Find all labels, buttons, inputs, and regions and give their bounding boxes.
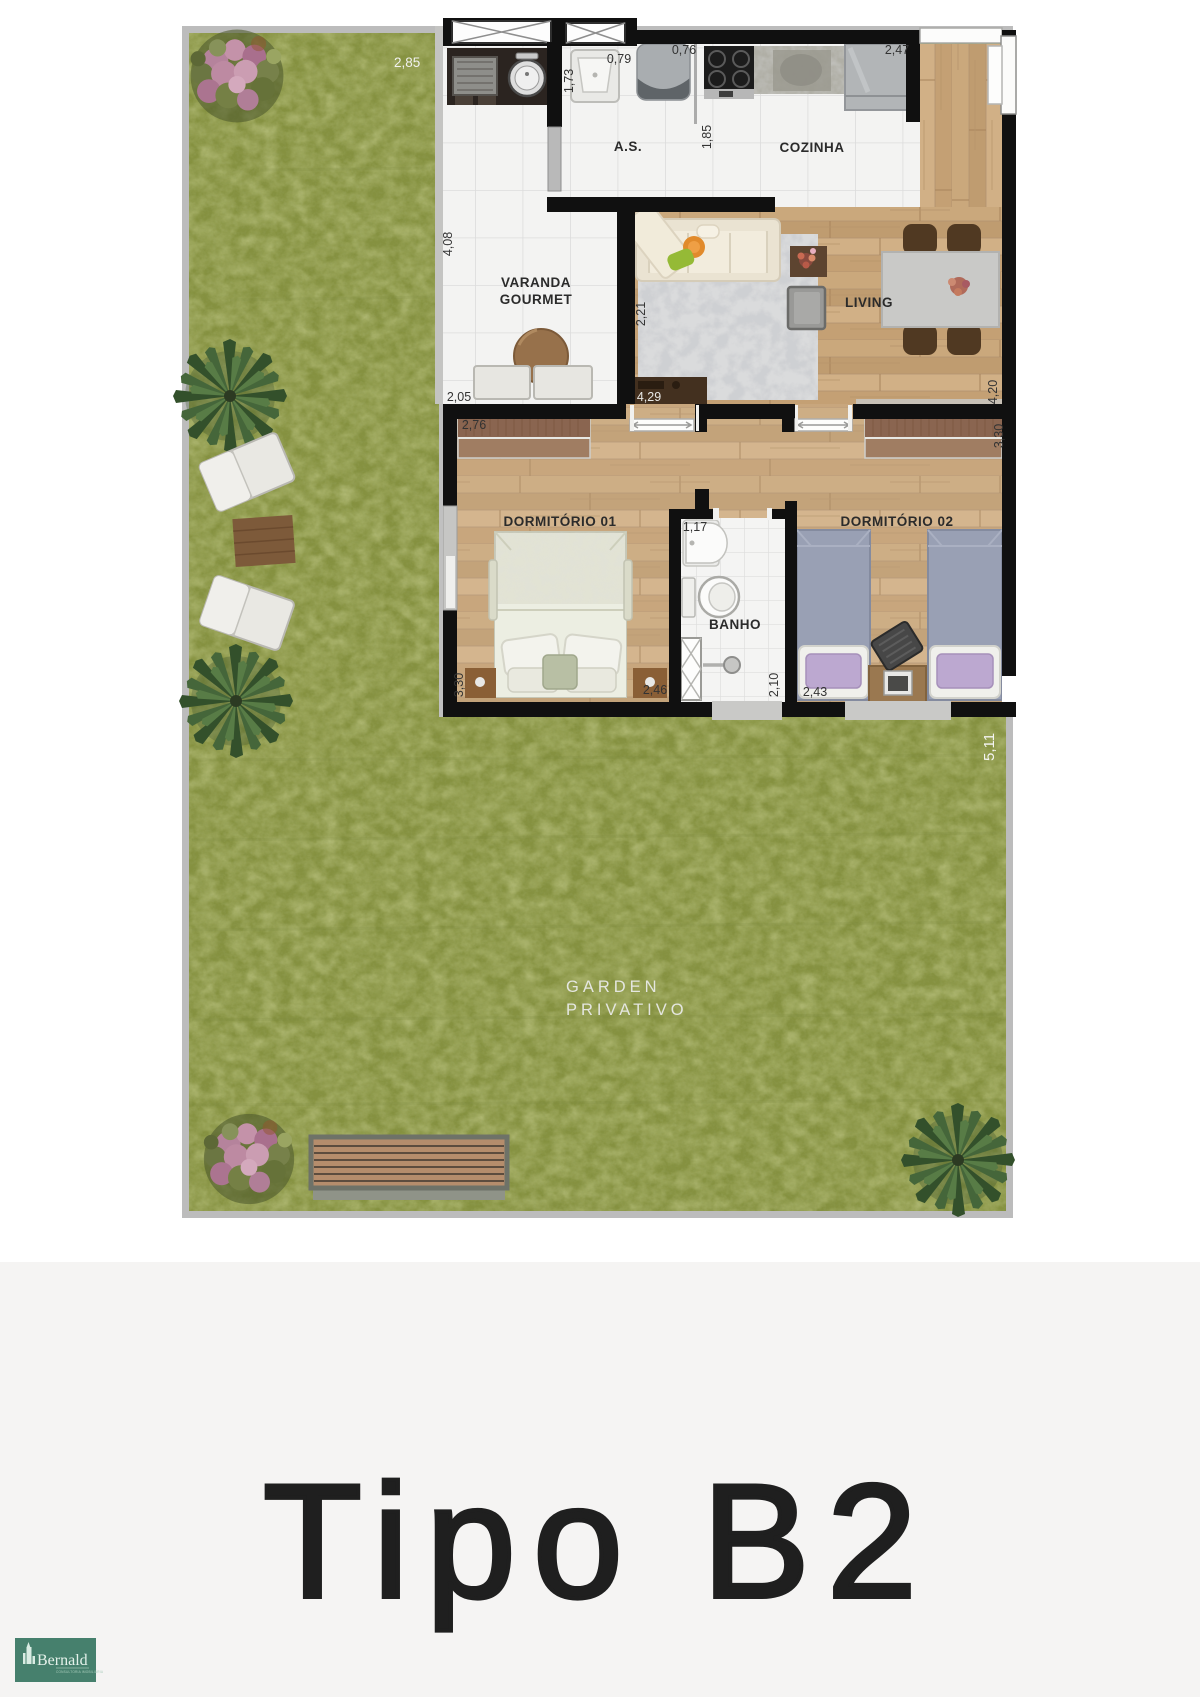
svg-text:CONSULTORIA IMOBILIÁRIA: CONSULTORIA IMOBILIÁRIA (56, 1670, 104, 1674)
svg-text:1,17: 1,17 (683, 520, 707, 534)
svg-text:Bernald: Bernald (37, 1652, 88, 1669)
svg-text:0,79: 0,79 (607, 52, 631, 66)
svg-text:VARANDA: VARANDA (501, 275, 571, 290)
svg-text:2,43: 2,43 (803, 685, 827, 699)
svg-text:COZINHA: COZINHA (780, 140, 845, 155)
svg-text:A.S.: A.S. (614, 139, 642, 154)
svg-text:DORMITÓRIO 02: DORMITÓRIO 02 (840, 514, 953, 529)
svg-text:4,08: 4,08 (441, 232, 455, 256)
svg-text:2,21: 2,21 (634, 302, 648, 326)
svg-text:DORMITÓRIO 01: DORMITÓRIO 01 (503, 514, 616, 529)
svg-text:LIVING: LIVING (845, 295, 893, 310)
svg-text:PRIVATIVO: PRIVATIVO (566, 1001, 688, 1019)
svg-text:GOURMET: GOURMET (500, 292, 573, 307)
svg-text:BANHO: BANHO (709, 617, 761, 632)
svg-text:3,30: 3,30 (452, 673, 466, 697)
svg-text:2,46: 2,46 (643, 683, 667, 697)
svg-text:2,76: 2,76 (462, 418, 486, 432)
svg-text:0,76: 0,76 (672, 43, 696, 57)
svg-text:2,10: 2,10 (767, 673, 781, 697)
svg-text:2,47: 2,47 (885, 43, 909, 57)
svg-text:3,30: 3,30 (992, 424, 1006, 448)
svg-text:5,11: 5,11 (981, 733, 998, 761)
svg-text:2,85: 2,85 (394, 55, 420, 70)
svg-text:2,05: 2,05 (447, 390, 471, 404)
svg-text:1,85: 1,85 (700, 125, 714, 149)
svg-text:4,29: 4,29 (637, 390, 661, 404)
svg-text:4,20: 4,20 (986, 380, 1000, 404)
svg-text:GARDEN: GARDEN (566, 978, 661, 996)
svg-text:1,73: 1,73 (562, 69, 576, 93)
